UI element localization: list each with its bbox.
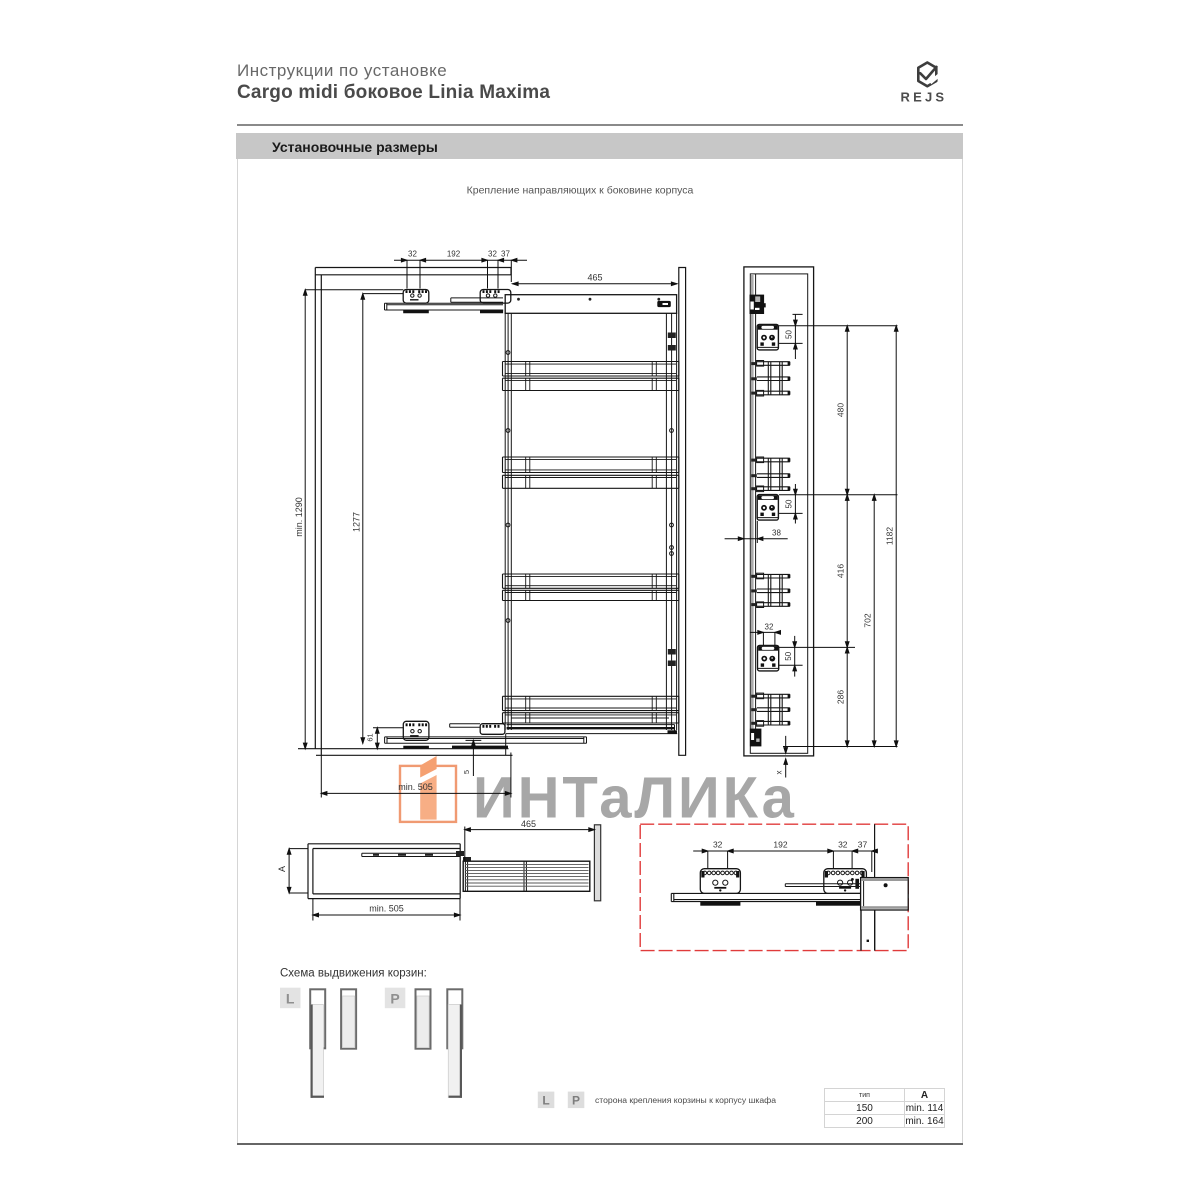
svg-text:min. 505: min. 505 bbox=[369, 904, 404, 914]
svg-text:37: 37 bbox=[501, 250, 510, 259]
svg-text:P: P bbox=[572, 1094, 580, 1108]
svg-text:min. 505: min. 505 bbox=[398, 782, 433, 792]
svg-text:61: 61 bbox=[365, 733, 374, 741]
svg-text:Схема выдвижения корзин:: Схема выдвижения корзин: bbox=[280, 968, 427, 980]
svg-text:286: 286 bbox=[836, 690, 846, 704]
svg-text:32: 32 bbox=[838, 840, 848, 850]
svg-text:x: x bbox=[775, 771, 784, 775]
svg-text:702: 702 bbox=[863, 613, 873, 627]
svg-text:38: 38 bbox=[772, 529, 781, 538]
svg-text:5: 5 bbox=[462, 770, 471, 774]
svg-text:32: 32 bbox=[713, 840, 723, 850]
svg-text:416: 416 bbox=[836, 564, 846, 578]
svg-text:min. 1290: min. 1290 bbox=[294, 497, 304, 537]
svg-text:Крепление направляющих к боков: Крепление направляющих к боковине корпус… bbox=[467, 185, 694, 197]
svg-text:32: 32 bbox=[765, 623, 774, 632]
svg-text:P: P bbox=[390, 991, 399, 1007]
svg-text:L: L bbox=[286, 991, 295, 1007]
svg-text:REJS: REJS bbox=[901, 90, 948, 105]
svg-text:50: 50 bbox=[785, 499, 794, 508]
svg-text:A: A bbox=[277, 866, 287, 872]
svg-text:192: 192 bbox=[447, 250, 461, 259]
svg-text:сторона крепления корзины к ко: сторона крепления корзины к корпусу шкаф… bbox=[595, 1095, 776, 1105]
svg-text:37: 37 bbox=[858, 840, 868, 850]
svg-text:465: 465 bbox=[587, 273, 602, 283]
svg-text:1182: 1182 bbox=[885, 527, 895, 546]
svg-text:L: L bbox=[542, 1094, 549, 1108]
svg-text:50: 50 bbox=[785, 330, 794, 339]
svg-text:50: 50 bbox=[784, 651, 793, 660]
svg-text:32: 32 bbox=[408, 250, 417, 259]
svg-text:32: 32 bbox=[488, 250, 497, 259]
svg-text:192: 192 bbox=[773, 840, 787, 850]
svg-text:1277: 1277 bbox=[352, 512, 362, 532]
svg-text:465: 465 bbox=[521, 819, 536, 829]
svg-text:480: 480 bbox=[836, 403, 846, 417]
